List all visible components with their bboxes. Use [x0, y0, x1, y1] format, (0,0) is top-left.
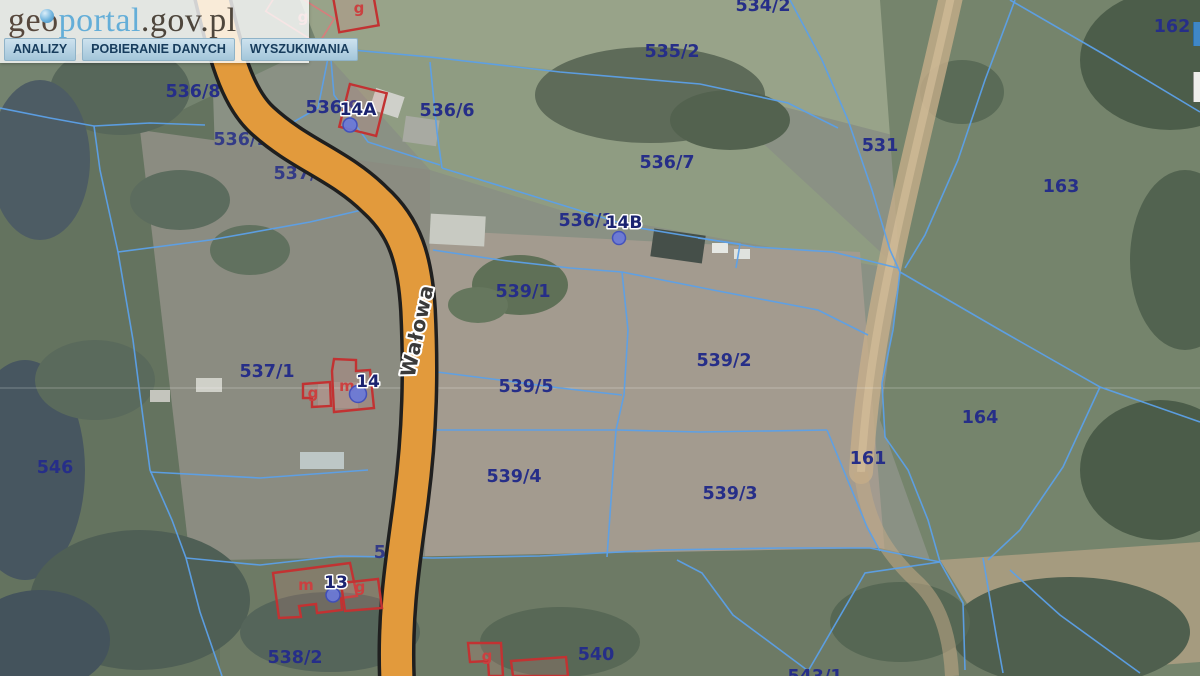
- building-mark: m: [298, 576, 314, 594]
- right-edge-scrollbar-fragment[interactable]: [1193, 72, 1200, 102]
- parcel-label: 536/8: [165, 82, 220, 102]
- building-mark: g: [308, 384, 319, 402]
- parcel-label: 536/6: [419, 101, 474, 121]
- address-label: 14A: [340, 100, 378, 120]
- logo[interactable]: geoportal.gov.pl: [8, 2, 237, 40]
- logo-part-portal: portal: [59, 2, 141, 39]
- menu-button-wyszukiwania[interactable]: WYSZUKIWANIA: [241, 38, 358, 61]
- building-mark: g: [482, 647, 493, 665]
- logo-part-suffix: .gov.pl: [141, 2, 237, 39]
- building-mark: g: [354, 0, 365, 17]
- parcel-label: 539/3: [702, 484, 757, 504]
- parcel-label: 540: [578, 645, 615, 665]
- parcel-label: 539/5: [498, 377, 553, 397]
- parcel-label: 536/7: [639, 153, 694, 173]
- main-menu: ANALIZY POBIERANIE DANYCH WYSZUKIWANIA: [4, 38, 358, 61]
- menu-button-analizy[interactable]: ANALIZY: [4, 38, 76, 61]
- parcel-label: 534/2: [735, 0, 790, 16]
- parcel-label: 543/1: [787, 667, 842, 676]
- map-canvas[interactable]: 534/2 535/2 162 536/8 536/9 536/6 536/7 …: [0, 0, 1200, 676]
- menu-button-pobieranie-danych[interactable]: POBIERANIE DANYCH: [82, 38, 235, 61]
- parcel-label: 531: [862, 136, 899, 156]
- parcel-label: 162: [1154, 17, 1191, 37]
- address-point[interactable]: [343, 118, 357, 132]
- address-label: 14B: [606, 213, 643, 233]
- parcel-label: 539/1: [495, 282, 550, 302]
- geoportal-window: 534/2 535/2 162 536/8 536/9 536/6 536/7 …: [0, 0, 1200, 676]
- parcel-label: 538/2: [267, 648, 322, 668]
- logo-panel: geoportal.gov.pl ANALIZY POBIERANIE DANY…: [0, 0, 309, 63]
- parcel-label: 164: [962, 408, 999, 428]
- parcel-label: 539/2: [696, 351, 751, 371]
- parcel-label: 535/2: [644, 42, 699, 62]
- parcel-label: 163: [1043, 177, 1080, 197]
- parcel-label: 161: [850, 449, 887, 469]
- building-outline: [511, 657, 568, 676]
- address-label: 13: [324, 573, 348, 593]
- globe-icon: [40, 9, 54, 23]
- parcel-label: 537/1: [239, 362, 294, 382]
- address-label: 14: [356, 372, 380, 392]
- address-point[interactable]: [613, 232, 626, 245]
- parcel-label: 539/4: [486, 467, 541, 487]
- right-edge-panel-toggle[interactable]: [1193, 22, 1200, 46]
- building-mark: g: [355, 578, 366, 596]
- parcel-label: 546: [37, 458, 74, 478]
